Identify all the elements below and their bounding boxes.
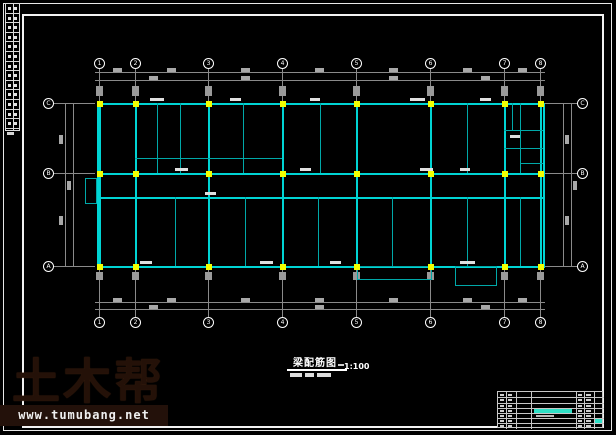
partition-line [175,197,176,266]
column-marker [133,264,139,270]
rebar-annotation [481,124,498,137]
axis-bubble-top: 8 [535,58,546,69]
rebar-annotation [163,143,183,154]
rebar-annotation [250,182,277,193]
titleblock-line [498,413,604,414]
column-stub [427,86,434,96]
titleblock-line [594,392,595,429]
partition-line [512,103,513,130]
axis-bubble-bottom: 5 [351,317,362,328]
rebar-annotation [85,181,96,204]
column-stub [501,86,508,96]
axis-bubble-top: 7 [499,58,510,69]
dimension-text [463,298,472,302]
rebar-annotation [222,122,234,152]
dimension-text [573,181,577,190]
column-stub [537,86,544,96]
column-marker [354,101,360,107]
axis-bubble-bottom: 3 [203,317,214,328]
axis-bubble-top: 1 [94,58,105,69]
rebar-annotation [485,207,498,230]
column-stub [132,86,139,96]
rebar-annotation [530,150,543,163]
titleblock-text [508,399,512,401]
beam-label [420,168,433,171]
partition-line [520,197,521,266]
titleblock-text [586,399,591,401]
drawing-title: 梁配筋图 1:100 [280,352,390,384]
dimension-text [113,298,122,302]
beam-label [260,261,273,264]
rebar-annotation [530,180,539,190]
column-stub [279,86,286,96]
titleblock-text [508,405,512,407]
drawing-scale: 1:100 [344,362,369,371]
dimension-line [73,103,74,266]
axis-bubble-top: 2 [130,58,141,69]
titleblock-text [578,399,582,401]
beam-label [460,261,475,264]
dimension-text [167,68,176,72]
dimension-text [565,216,569,225]
axis-stem [53,266,95,267]
column-marker [97,264,103,270]
dimension-text [315,305,324,309]
dimension-line [95,302,545,303]
axis-bubble-bottom: 1 [94,317,105,328]
titleblock-text [586,415,591,417]
axis-beam [540,103,542,266]
dimension-text [241,76,250,80]
titleblock-text [578,394,582,396]
axis-beam [208,103,210,266]
axis-stem [53,103,95,104]
axis-bubble-top: 3 [203,58,214,69]
column-stub [205,86,212,96]
dimension-text [241,298,250,302]
axis-beam [99,103,101,266]
rebar-annotation [455,230,461,240]
axis-beam [504,103,506,266]
axis-stem [545,103,578,104]
titleblock-text [508,415,512,417]
partition-line [318,197,319,266]
column-marker [502,101,508,107]
titleblock-text [500,394,504,396]
column-marker [538,264,544,270]
beam-label [230,98,241,101]
dimension-text [518,68,527,72]
title-subtext [317,373,331,377]
dimension-line [563,103,564,266]
titleblock-text [578,415,582,417]
column-marker [133,171,139,177]
dimension-text [481,76,490,80]
titleblock-text [586,420,591,422]
axis-bubble-right: C [577,98,588,109]
rebar-annotation [347,180,353,190]
column-marker [280,264,286,270]
watermark: 土木帮 www.tumubang.net [0,340,180,430]
beam-label [205,192,216,195]
column-marker [428,101,434,107]
axis-bubble-top: 6 [425,58,436,69]
dimension-text [113,68,122,72]
watermark-brand: 土木帮 [12,342,165,412]
drawing-title-text: 梁配筋图 [293,354,337,369]
axis-bubble-bottom: 7 [499,317,510,328]
rebar-annotation [193,213,205,241]
title-underline [287,369,347,371]
partition-line [135,158,282,159]
rebar-annotation [230,217,242,242]
rebar-annotation [120,215,131,241]
axis-bubble-bottom: 8 [535,317,546,328]
column-stub [96,86,103,96]
dimension-text [389,68,398,72]
dimension-text [315,68,324,72]
partition-line [520,103,521,148]
watermark-url: www.tumubang.net [0,405,168,426]
column-stub [537,272,544,280]
axis-bubble-right: B [577,168,588,179]
column-marker [428,171,434,177]
titleblock-line [498,418,604,419]
title-block [497,391,603,428]
column-marker [280,171,286,177]
wall-line [543,103,545,266]
titleblock-text [500,420,504,422]
axis-bubble-left: C [43,98,54,109]
axis-bubble-bottom: 4 [277,317,288,328]
protrusion-outline [357,266,432,280]
drawing-sheet: 1122334455667788CCBBAA 梁配筋图 1:100 土木帮 ww… [0,0,616,435]
beam-line [97,103,545,105]
dimension-line [65,103,66,266]
titleblock-text [500,405,504,407]
titleblock-line [498,423,604,424]
axis-bubble-left: A [43,261,54,272]
beam-label [480,98,491,101]
rebar-annotation [167,228,174,238]
column-marker [502,264,508,270]
titleblock-line [584,392,585,429]
column-stub [132,272,139,280]
column-marker [206,101,212,107]
column-marker [428,264,434,270]
beam-line [97,173,545,175]
partition-line [467,197,468,266]
axis-beam [135,103,137,266]
rebar-annotation [385,230,393,242]
axis-stem [53,173,95,174]
axis-stem [545,173,578,174]
dimension-line [571,103,572,266]
dimension-text [518,298,527,302]
partition-line [245,197,246,266]
protrusion-outline [455,266,497,286]
dimension-text [149,305,158,309]
titleblock-text [500,399,504,401]
dimension-text [59,216,63,225]
beam-label [510,135,520,138]
beam-label [300,168,311,171]
partition-line [243,103,244,173]
title-subtext [290,373,302,377]
partition-line [520,163,543,164]
axis-bubble-bottom: 2 [130,317,141,328]
axis-stem [545,266,578,267]
titleblock-text [586,394,591,396]
rebar-annotation [145,115,158,143]
titleblock-project-name [534,409,572,413]
dimension-text [67,181,71,190]
rebar-annotation [460,110,474,130]
column-marker [280,101,286,107]
titleblock-line [576,392,577,429]
dimension-text [167,298,176,302]
axis-bubble-bottom: 6 [425,317,436,328]
axis-bubble-top: 5 [351,58,362,69]
dimension-text [565,135,569,144]
column-stub [96,272,103,280]
dimension-text [389,298,398,302]
revision-note [7,132,14,135]
titleblock-line [498,403,604,404]
column-stub [353,86,360,96]
dimension-text [481,305,490,309]
titleblock-text [586,425,591,427]
beam-label [410,98,425,101]
titleblock-text [586,405,591,407]
dimension-text [59,135,63,144]
dimension-text [241,68,250,72]
column-marker [133,101,139,107]
titleblock-text [578,420,582,422]
column-stub [501,272,508,280]
beam-label [175,168,188,171]
dimension-text [463,68,472,72]
titleblock-text [508,394,512,396]
rebar-annotation [438,118,449,150]
axis-bubble-right: A [577,261,588,272]
column-marker [206,264,212,270]
axis-beam [282,103,284,266]
dimension-text [315,298,324,302]
titleblock-line [498,397,604,398]
titleblock-line [531,392,532,429]
title-subtext [305,373,314,377]
titleblock-text [508,425,512,427]
titleblock-text [578,405,582,407]
column-marker [538,101,544,107]
titleblock-line [506,392,507,429]
beam-label [460,168,470,171]
dimension-line [95,309,545,310]
titleblock-text [578,410,582,412]
axis-beam [430,103,432,266]
dimension-line [95,80,545,81]
column-marker [97,101,103,107]
partition-line [320,103,321,173]
column-marker [354,171,360,177]
titleblock-text [508,420,512,422]
titleblock-text [586,410,591,412]
titleblock-text [578,425,582,427]
column-marker [502,171,508,177]
dimension-line [95,72,545,73]
titleblock-text [508,410,512,412]
axis-bubble-left: B [43,168,54,179]
titleblock-drawing-number [595,419,602,423]
axis-beam [356,103,358,266]
titleblock-text [536,415,554,417]
partition-line [504,130,543,131]
rebar-annotation [167,110,183,146]
axis-bubble-top: 4 [277,58,288,69]
titleblock-line [516,392,517,429]
column-marker [97,171,103,177]
beam-label [140,261,152,264]
dimension-text [149,76,158,80]
titleblock-text [500,425,504,427]
titleblock-text [500,415,504,417]
beam-line [97,197,545,199]
beam-label [150,98,164,101]
titleblock-text [500,410,504,412]
column-marker [354,264,360,270]
column-stub [279,272,286,280]
rebar-annotation [257,215,268,242]
partition-line [504,148,543,149]
dimension-text [389,76,398,80]
column-stub [205,272,212,280]
rebar-annotation [373,270,383,278]
beam-label [330,261,341,264]
beam-label [310,98,320,101]
column-marker [206,171,212,177]
column-marker [538,171,544,177]
rebar-annotation [303,213,316,238]
